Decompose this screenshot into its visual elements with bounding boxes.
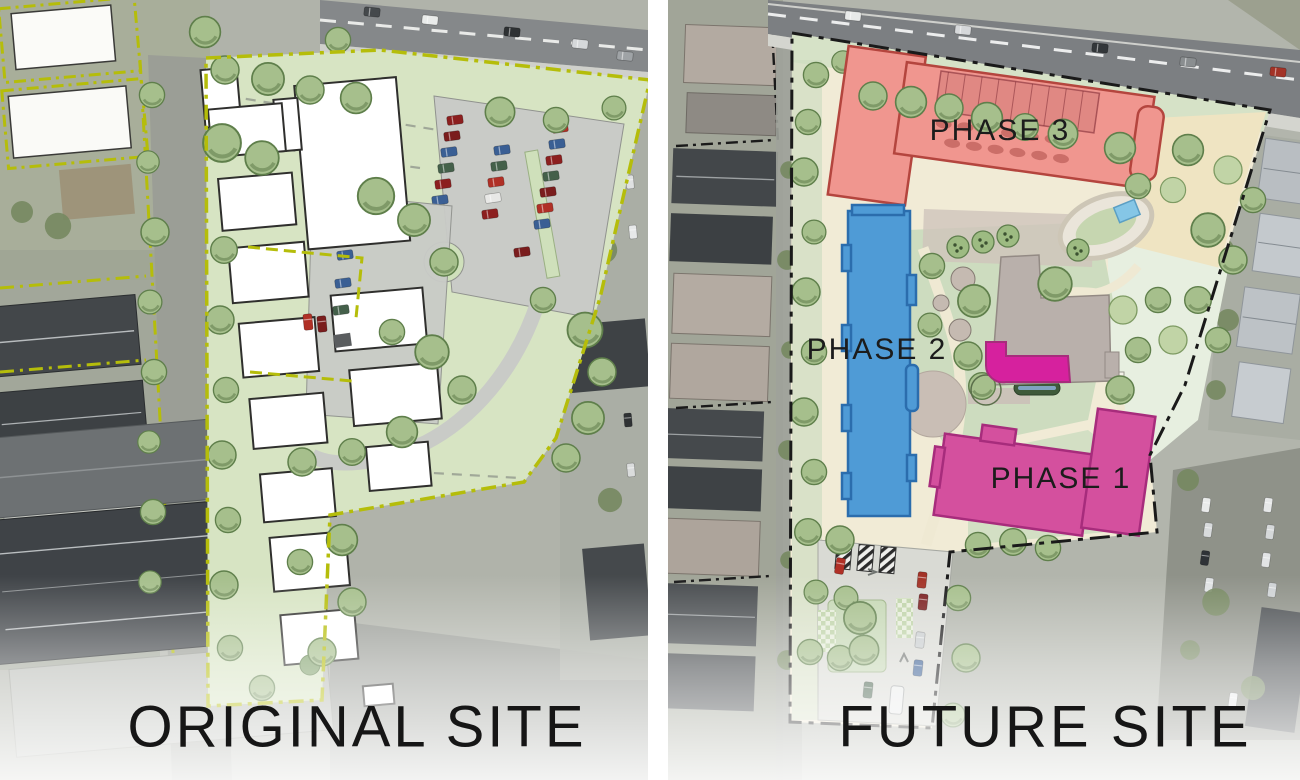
parking-lot bbox=[424, 96, 624, 318]
original-site-plan-graphic bbox=[0, 0, 648, 780]
phase-1-label: PHASE 1 bbox=[991, 462, 1132, 496]
original-site-title: ORIGINAL SITE bbox=[127, 694, 586, 761]
panel-original-site: ORIGINAL SITE bbox=[0, 0, 648, 780]
panel-divider bbox=[648, 0, 668, 780]
phase-2-label: PHASE 2 bbox=[807, 333, 948, 367]
screenshot-root: ORIGINAL SITE bbox=[0, 0, 1300, 780]
phase-3-label: PHASE 3 bbox=[930, 114, 1071, 148]
future-site-title: FUTURE SITE bbox=[838, 694, 1251, 761]
panel-future-site: PHASE 3 PHASE 2 PHASE 1 FUTURE SITE bbox=[668, 0, 1300, 780]
